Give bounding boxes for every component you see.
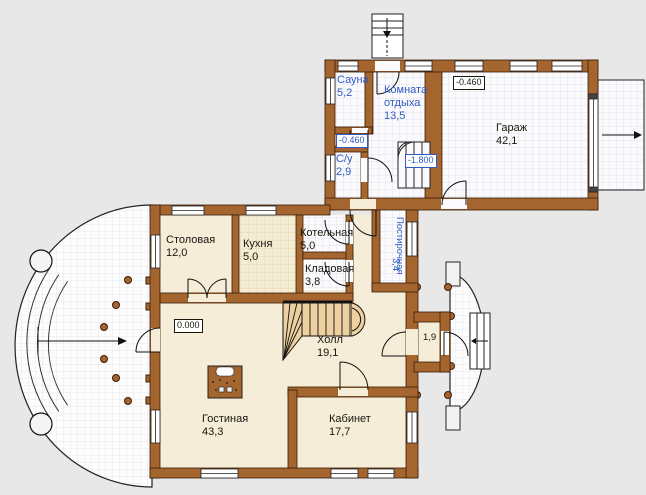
terrace [15, 205, 154, 487]
floor-plan: Сауна5,2 Комната отдыха13,5 Гараж42,1 С/… [0, 0, 646, 495]
room-label-pantry: Кладовая3,8 [305, 263, 354, 289]
porch-pillar [446, 406, 460, 430]
elevation-mark-stair: -1.800 [405, 154, 437, 168]
room-label-kitchen: Кухня5,0 [243, 238, 272, 264]
room-area-laundry: 3,4 [390, 258, 400, 271]
room-label-living: Гостиная43,3 [202, 413, 248, 439]
room-label-sauna: Сауна5,2 [337, 74, 369, 100]
entry-steps-top [372, 14, 403, 58]
elevation-mark-zero: 0.000 [174, 319, 203, 333]
elevation-mark-garage: -0.460 [453, 76, 485, 90]
terrace-column [30, 250, 52, 272]
elevation-mark-sauna: -0.460 [336, 134, 368, 148]
room-label-wc: С/у2,9 [336, 153, 353, 179]
garage-apron [598, 80, 644, 190]
porch-steps [470, 313, 490, 369]
room-label-boiler: Котельная5,0 [300, 227, 353, 253]
terrace-column [30, 413, 52, 435]
room-label-dining: Столовая12,0 [166, 234, 215, 260]
room-label-study: Кабинет17,7 [329, 413, 371, 439]
room-label-garage: Гараж42,1 [496, 122, 527, 148]
garage-gate [589, 94, 598, 192]
room-label-hall: Холл19,1 [317, 334, 343, 360]
vestibule-area-label: 1,9 [423, 333, 436, 343]
fireplace [208, 366, 242, 398]
porch-pillar [446, 262, 460, 286]
room-label-rest: Комната отдыха13,5 [384, 84, 440, 123]
